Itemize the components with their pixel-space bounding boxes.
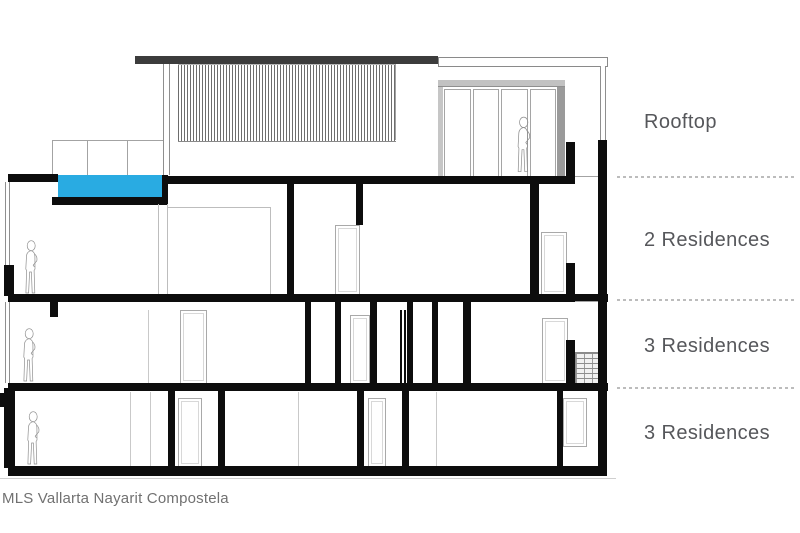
exterior-wall bbox=[5, 302, 10, 383]
roof-railing-post bbox=[127, 140, 128, 175]
level-label-2-residences: 2 Residences bbox=[644, 228, 770, 252]
interior-elevation-line bbox=[167, 204, 168, 294]
building-section-drawing: Rooftop 2 Residences 3 Residences 3 Resi… bbox=[0, 0, 800, 533]
interior-elevation-line bbox=[270, 207, 271, 294]
person-figure bbox=[19, 239, 43, 296]
stone-cladding bbox=[575, 352, 600, 385]
wall-cut bbox=[566, 340, 575, 384]
roof-railing-post bbox=[52, 140, 53, 175]
person-figure bbox=[17, 327, 41, 384]
exterior-wall-cut bbox=[598, 140, 607, 476]
door-outline bbox=[542, 318, 568, 384]
floor-slab bbox=[8, 383, 608, 391]
person-figure bbox=[21, 410, 45, 467]
door-outline bbox=[350, 315, 370, 384]
glass-door-jamb bbox=[557, 87, 565, 177]
interior-elevation-line bbox=[298, 392, 299, 466]
right-parapet bbox=[600, 66, 606, 140]
glass-door-panel bbox=[444, 89, 471, 177]
exterior-wall bbox=[5, 182, 10, 265]
interior-elevation-line bbox=[436, 392, 437, 466]
interior-wall-cut bbox=[168, 390, 175, 466]
interior-wall-cut bbox=[530, 183, 539, 294]
interior-elevation-line bbox=[158, 204, 159, 294]
level-label-rooftop: Rooftop bbox=[644, 110, 717, 134]
glass-door-jamb bbox=[438, 87, 443, 177]
person-figure bbox=[511, 114, 536, 176]
rooftop-glass-doors bbox=[438, 80, 565, 177]
glass-partition-line bbox=[400, 310, 402, 383]
interior-wall-cut bbox=[432, 302, 438, 383]
glass-door-header bbox=[438, 80, 565, 87]
pool-basin-floor bbox=[52, 197, 168, 205]
foundation-slab bbox=[8, 466, 607, 476]
interior-wall-cut bbox=[357, 390, 364, 466]
door-outline bbox=[563, 398, 587, 447]
louver-end-post bbox=[395, 64, 396, 140]
exterior-wall-cut bbox=[4, 265, 14, 296]
level-separator bbox=[617, 176, 797, 178]
roof-slab bbox=[135, 56, 438, 64]
interior-wall-cut bbox=[218, 390, 225, 466]
glass-partition-line bbox=[404, 310, 406, 383]
wall-cut bbox=[566, 263, 575, 295]
exterior-wall-cut bbox=[4, 388, 15, 468]
interior-wall-cut bbox=[305, 302, 311, 383]
pergola-post bbox=[163, 64, 170, 175]
roof-railing-post bbox=[87, 140, 88, 175]
glass-door-panel bbox=[473, 89, 500, 177]
terrace-floor-line bbox=[575, 176, 598, 177]
interior-elevation-line bbox=[167, 207, 270, 208]
wall-stub bbox=[50, 302, 58, 317]
terrace-floor-line bbox=[575, 301, 598, 302]
door-outline bbox=[541, 232, 567, 295]
interior-wall-cut bbox=[402, 390, 409, 466]
door-outline bbox=[180, 310, 207, 384]
level-separator bbox=[617, 299, 797, 301]
level-label-3-residences-lower: 3 Residences bbox=[644, 421, 770, 445]
interior-elevation-line bbox=[150, 392, 151, 466]
level-label-3-residences-upper: 3 Residences bbox=[644, 334, 770, 358]
interior-wall-cut bbox=[370, 302, 377, 383]
floor-slab bbox=[8, 294, 608, 302]
door-outline bbox=[335, 225, 360, 295]
interior-wall-cut bbox=[356, 183, 363, 225]
level-separator bbox=[617, 387, 797, 389]
interior-elevation-line bbox=[130, 392, 131, 466]
exterior-wall-cut bbox=[0, 393, 5, 407]
interior-wall-cut bbox=[287, 183, 294, 294]
door-outline bbox=[368, 398, 386, 467]
roof-deck-slab bbox=[8, 174, 58, 182]
pool-water bbox=[58, 175, 162, 197]
interior-elevation-line bbox=[148, 310, 149, 383]
door-outline bbox=[178, 398, 202, 467]
louver-screen bbox=[178, 64, 396, 142]
roof-overhang bbox=[438, 57, 608, 67]
watermark-caption: MLS Vallarta Nayarit Compostela bbox=[2, 490, 229, 507]
interior-wall-cut bbox=[407, 302, 413, 383]
ground-line bbox=[0, 478, 616, 479]
interior-wall-cut bbox=[463, 302, 471, 383]
floor-slab-rooftop bbox=[162, 176, 575, 184]
roof-railing-rail bbox=[52, 140, 163, 141]
interior-wall-cut bbox=[335, 302, 341, 383]
